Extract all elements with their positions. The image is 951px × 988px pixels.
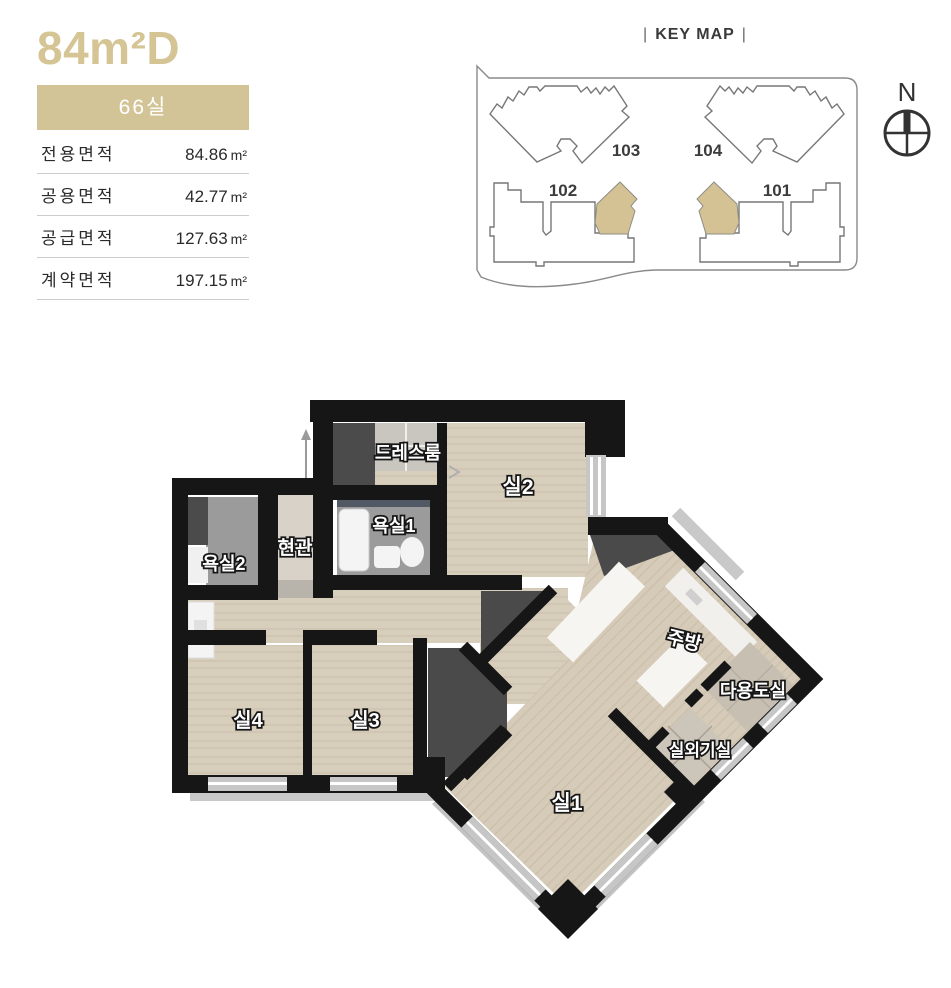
label-room2: 실2 [503,476,534,499]
floor-plan: 드레스룸 실2 욕실1 현관 욕실2 실4 실3 실1 주방 다용도실 실외기실 [172,400,812,939]
entrance-mat [278,580,313,598]
label-utility-room: 다용도실 [720,681,786,701]
keymap-boundary [477,66,857,287]
label-bath1: 욕실1 [372,516,415,536]
glass-line [598,457,601,515]
building-103-number: 103 [612,141,640,160]
building-101-number: 101 [763,181,791,200]
building-102-number: 102 [549,181,577,200]
label-room4: 실4 [233,709,263,732]
bathtub [339,509,369,571]
tip-wall-block [538,879,598,939]
scene-graphics: 103 104 102 101 N [0,0,951,988]
label-room3: 실3 [350,709,380,732]
bath2-niche [188,497,208,545]
building-104-number: 104 [694,141,723,160]
glass-line [590,457,593,515]
floors [188,423,808,907]
bath1-sink [374,546,400,568]
north-compass: N [885,77,929,155]
label-ac-room: 실외기실 [669,741,732,760]
bath1-toilet [400,537,424,567]
label-room1: 실1 [552,792,583,815]
compass-n-label: N [898,77,917,107]
glass-line [330,782,397,785]
label-entrance: 현관 [278,537,313,559]
label-dress-room: 드레스룸 [375,443,441,463]
brochure-page: 84m²D 66실 전용면적 84.86m² 공용면적 42.77m² 공급면적… [0,0,951,988]
antenna-arrow-icon [301,429,311,440]
keymap: 103 104 102 101 [477,66,857,287]
label-bath2: 욕실2 [202,554,245,574]
balcony-strip-bottom [190,793,445,801]
glass-line [208,782,287,785]
room2-floor [447,423,588,577]
room2-window [586,455,606,517]
